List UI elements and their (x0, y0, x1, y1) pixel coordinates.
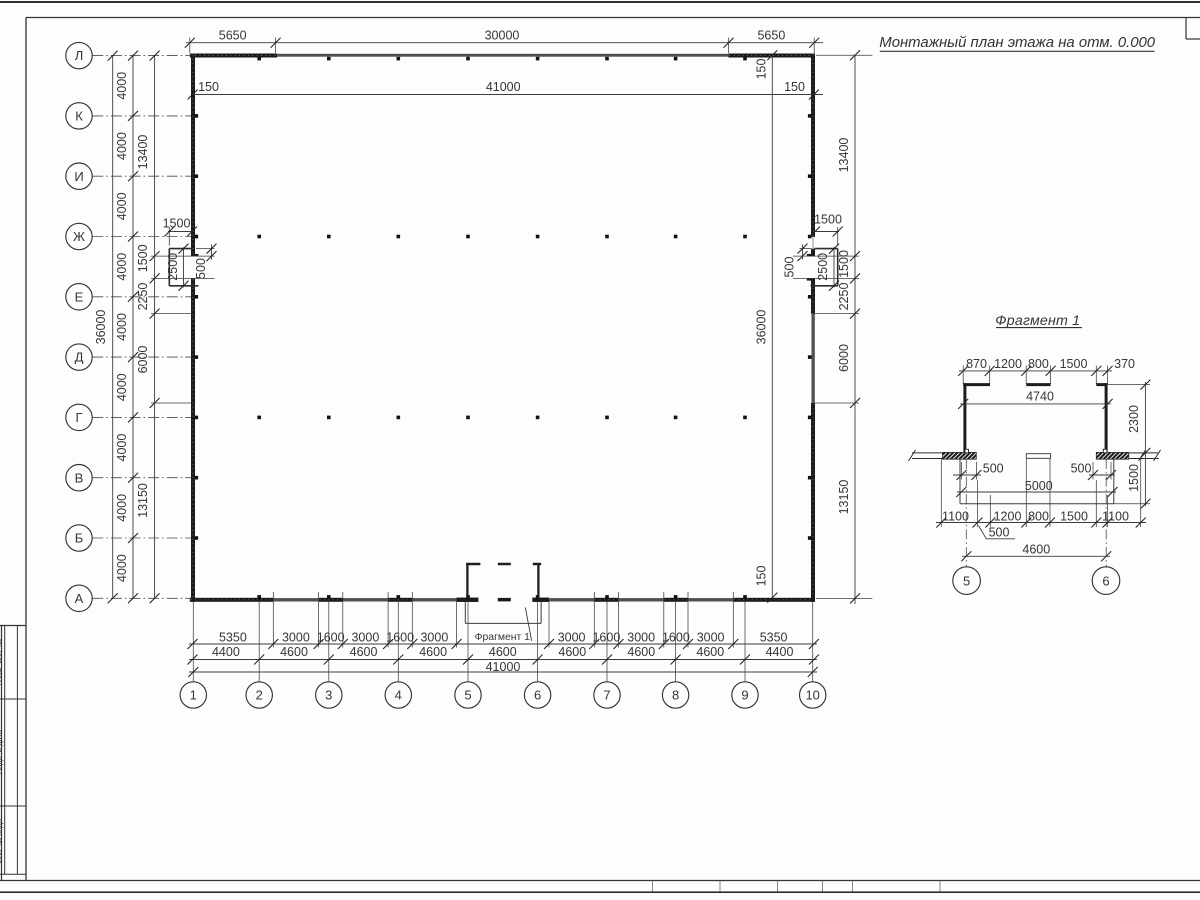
svg-text:Фрагмент 1: Фрагмент 1 (475, 632, 531, 643)
svg-text:5350: 5350 (219, 631, 247, 645)
svg-text:30000: 30000 (485, 29, 520, 43)
svg-text:8: 8 (672, 688, 679, 703)
svg-text:1200: 1200 (994, 509, 1022, 523)
svg-text:800: 800 (1028, 509, 1049, 523)
svg-text:5650: 5650 (757, 29, 785, 43)
svg-text:Д: Д (75, 350, 84, 365)
svg-text:5: 5 (464, 688, 471, 703)
svg-text:3000: 3000 (420, 631, 448, 645)
svg-text:Подп. и дата: Подп. и дата (0, 729, 4, 774)
svg-text:В: В (75, 470, 84, 485)
svg-text:4740: 4740 (1026, 389, 1054, 403)
svg-text:6000: 6000 (136, 346, 150, 374)
svg-text:3000: 3000 (697, 631, 725, 645)
svg-text:5: 5 (963, 573, 970, 588)
svg-text:1600: 1600 (386, 631, 414, 645)
svg-text:41000: 41000 (486, 660, 521, 674)
svg-text:36000: 36000 (94, 310, 108, 345)
svg-text:4: 4 (395, 688, 402, 703)
svg-text:7: 7 (603, 688, 610, 703)
svg-text:Е: Е (75, 289, 84, 304)
svg-text:Инв. № подл.: Инв. № подл. (0, 817, 4, 864)
svg-text:1500: 1500 (136, 244, 150, 272)
svg-text:500: 500 (983, 462, 1004, 476)
svg-text:4600: 4600 (558, 645, 586, 659)
svg-text:И: И (74, 169, 83, 184)
svg-text:Л: Л (75, 48, 84, 63)
svg-text:150: 150 (754, 566, 768, 587)
svg-text:41000: 41000 (486, 80, 521, 94)
svg-text:Взам. инв. №: Взам. инв. № (0, 639, 4, 685)
svg-text:9: 9 (741, 688, 748, 703)
svg-text:3000: 3000 (558, 631, 586, 645)
svg-text:1600: 1600 (317, 631, 345, 645)
svg-text:1500: 1500 (163, 216, 191, 230)
svg-text:2: 2 (256, 688, 263, 703)
svg-text:370: 370 (1114, 357, 1135, 371)
svg-text:2300: 2300 (1127, 405, 1141, 433)
svg-text:150: 150 (754, 59, 768, 80)
svg-text:4600: 4600 (627, 645, 655, 659)
svg-text:6: 6 (1102, 573, 1109, 588)
svg-text:3000: 3000 (282, 631, 310, 645)
svg-text:150: 150 (198, 80, 219, 94)
svg-text:3000: 3000 (627, 631, 655, 645)
svg-text:500: 500 (783, 257, 797, 278)
svg-text:3: 3 (325, 688, 332, 703)
svg-text:Г: Г (75, 410, 82, 425)
svg-text:4000: 4000 (115, 253, 129, 281)
svg-text:1500: 1500 (814, 212, 842, 226)
svg-text:4000: 4000 (115, 132, 129, 160)
svg-text:1600: 1600 (662, 631, 690, 645)
svg-text:3000: 3000 (351, 631, 379, 645)
svg-text:4000: 4000 (115, 554, 129, 582)
svg-text:Б: Б (75, 531, 84, 546)
svg-text:13400: 13400 (136, 135, 150, 170)
svg-text:1500: 1500 (1060, 357, 1088, 371)
svg-text:800: 800 (1028, 357, 1049, 371)
svg-text:1500: 1500 (1060, 509, 1088, 523)
svg-text:1600: 1600 (592, 631, 620, 645)
svg-text:10: 10 (805, 688, 819, 703)
svg-text:5350: 5350 (760, 631, 788, 645)
svg-text:13150: 13150 (837, 480, 851, 515)
svg-text:500: 500 (194, 258, 208, 279)
svg-text:36000: 36000 (754, 310, 768, 345)
svg-text:1: 1 (190, 688, 197, 703)
svg-text:4600: 4600 (280, 645, 308, 659)
svg-text:2500: 2500 (816, 253, 830, 281)
svg-text:13400: 13400 (837, 138, 851, 173)
svg-text:1500: 1500 (1127, 464, 1141, 492)
svg-text:4400: 4400 (766, 645, 794, 659)
svg-text:6: 6 (534, 688, 541, 703)
svg-text:500: 500 (989, 526, 1010, 540)
svg-text:1500: 1500 (837, 250, 851, 278)
svg-text:4000: 4000 (115, 494, 129, 522)
svg-text:150: 150 (784, 80, 805, 94)
svg-text:4600: 4600 (696, 645, 724, 659)
svg-text:4600: 4600 (350, 645, 378, 659)
svg-text:Монтажный план этажа на отм. 0: Монтажный план этажа на отм. 0.000 (879, 35, 1156, 51)
svg-text:2250: 2250 (136, 283, 150, 311)
svg-text:4000: 4000 (115, 373, 129, 401)
svg-text:4600: 4600 (489, 645, 517, 659)
svg-text:2250: 2250 (837, 283, 851, 311)
svg-text:13150: 13150 (136, 483, 150, 518)
svg-text:1100: 1100 (942, 509, 969, 523)
svg-text:4000: 4000 (115, 72, 129, 100)
svg-text:1200: 1200 (994, 357, 1022, 371)
svg-text:5650: 5650 (219, 29, 247, 43)
svg-text:К: К (75, 109, 83, 124)
svg-text:4600: 4600 (419, 645, 447, 659)
svg-text:870: 870 (966, 357, 987, 371)
svg-text:Ж: Ж (73, 229, 85, 244)
svg-text:А: А (75, 591, 84, 606)
svg-text:4600: 4600 (1022, 542, 1050, 556)
svg-text:6000: 6000 (837, 344, 851, 372)
svg-text:2500: 2500 (166, 253, 180, 281)
svg-text:4400: 4400 (212, 645, 240, 659)
svg-text:5000: 5000 (1025, 479, 1053, 493)
svg-text:4000: 4000 (115, 192, 129, 220)
svg-text:4000: 4000 (115, 313, 129, 341)
svg-text:4000: 4000 (115, 434, 129, 462)
svg-text:Фрагмент 1: Фрагмент 1 (995, 313, 1080, 329)
svg-text:500: 500 (1071, 462, 1092, 476)
